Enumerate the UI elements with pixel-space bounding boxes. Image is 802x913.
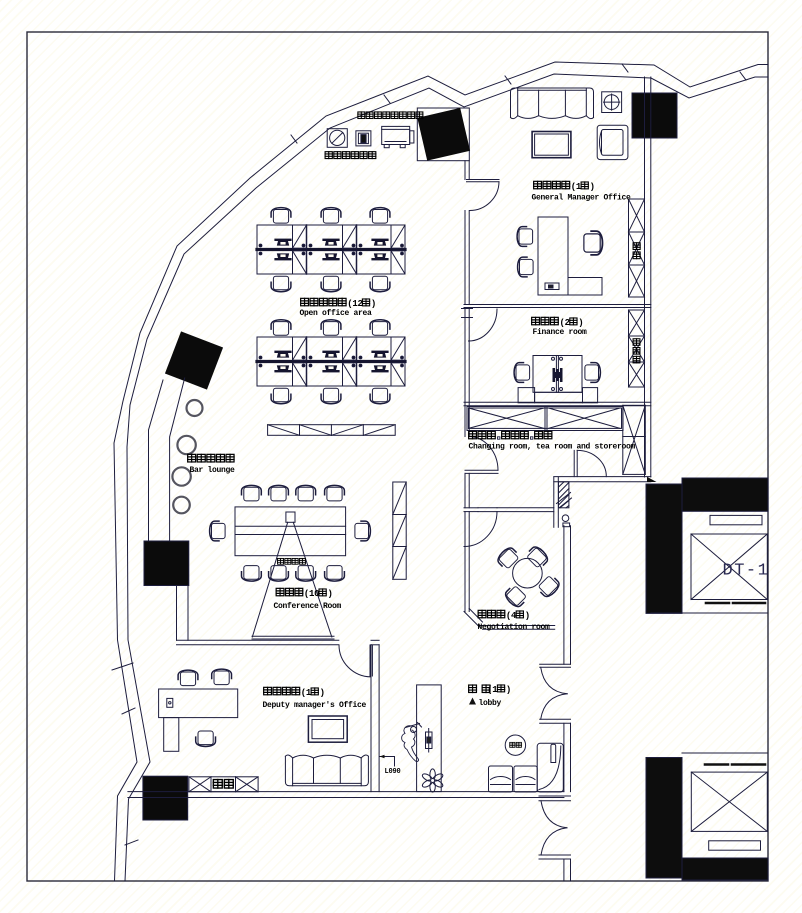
- svg-text:(12: (12: [347, 299, 362, 309]
- svg-text:Open office area: Open office area: [300, 309, 373, 318]
- svg-text:Deputy manager's Office: Deputy manager's Office: [263, 701, 367, 710]
- svg-text:): ): [590, 182, 595, 192]
- svg-text:(10: (10: [304, 589, 319, 599]
- svg-text:Finance room: Finance room: [533, 328, 588, 337]
- svg-text:(2: (2: [560, 318, 570, 328]
- svg-text:(4: (4: [506, 611, 517, 621]
- svg-text:(1: (1: [301, 688, 312, 698]
- svg-text:): ): [320, 688, 325, 698]
- svg-text:): ): [578, 318, 583, 328]
- svg-text:L090: L090: [385, 768, 401, 776]
- svg-text:(1: (1: [571, 182, 582, 192]
- svg-text:): ): [525, 611, 530, 621]
- svg-text:Changing room, tea room and st: Changing room, tea room and storeroom: [469, 443, 636, 452]
- svg-text:General Manager Office: General Manager Office: [532, 194, 632, 203]
- svg-text:): ): [371, 299, 376, 309]
- svg-text:): ): [506, 685, 511, 695]
- svg-text:Bar lounge: Bar lounge: [190, 466, 236, 475]
- svg-text:(1: (1: [487, 685, 498, 695]
- svg-text:): ): [328, 589, 333, 599]
- svg-text:Conference Room: Conference Room: [274, 602, 342, 611]
- svg-text:DT-1: DT-1: [723, 562, 770, 581]
- svg-text:Negotiation room: Negotiation room: [478, 623, 551, 632]
- svg-text:lobby: lobby: [479, 699, 502, 708]
